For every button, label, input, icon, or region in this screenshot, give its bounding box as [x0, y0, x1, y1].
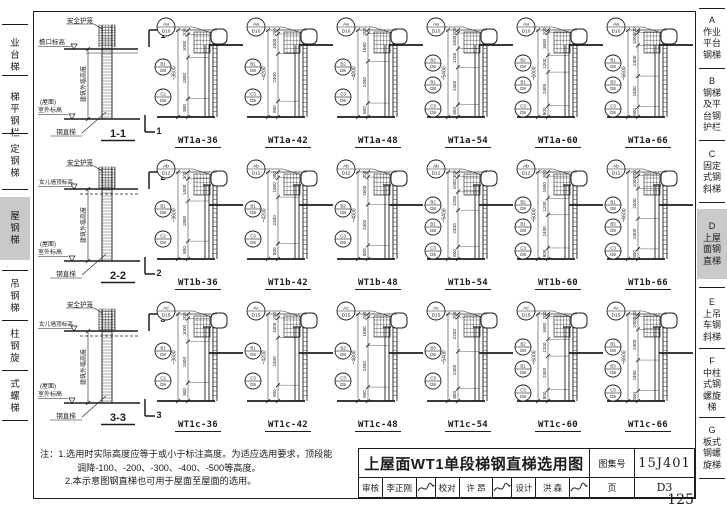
- svg-text:B1: B1: [520, 222, 526, 227]
- svg-text:1600: 1600: [362, 185, 367, 196]
- sign-name: 许 昂: [459, 478, 493, 497]
- tab-label-line: 作业: [703, 27, 721, 39]
- tab-separator: [699, 68, 725, 69]
- callout-bubble: AcD15: [247, 302, 265, 320]
- svg-text:D9: D9: [610, 110, 616, 115]
- tab-key: D: [709, 221, 716, 233]
- svg-text:D12: D12: [432, 171, 441, 177]
- side-tab-G: G板式钢螺旋梯: [697, 423, 727, 473]
- svg-text:1200: 1200: [452, 52, 457, 63]
- callout-bubble: AaD10: [337, 18, 355, 36]
- sign-label: 审核: [359, 478, 382, 497]
- callout-bubble: AcD15: [607, 302, 625, 320]
- tab-label-line: 板式: [703, 437, 721, 449]
- ladder-diagram: ~360020010001800800AcD15B1D8C2D9: [153, 301, 243, 419]
- tab-separator: [2, 370, 28, 371]
- svg-text:D10: D10: [612, 29, 621, 35]
- svg-text:200: 200: [452, 27, 457, 35]
- tab-key: B: [709, 76, 715, 88]
- tab-label-line: 式钢: [703, 379, 721, 391]
- svg-text:B1: B1: [520, 80, 526, 85]
- callout-bubble: C3D9: [335, 89, 351, 105]
- svg-text:B1: B1: [160, 204, 166, 209]
- svg-text:1000: 1000: [182, 184, 187, 195]
- svg-text:~4800: ~4800: [352, 350, 358, 364]
- svg-text:~5400: ~5400: [442, 350, 448, 364]
- callout-bubble: B3D8: [425, 343, 441, 359]
- callout-bubble: B3D8: [605, 77, 621, 93]
- svg-text:室外标高: 室外标高: [38, 390, 62, 398]
- callout-bubble: B1D8: [515, 77, 531, 93]
- svg-text:D8: D8: [610, 206, 616, 211]
- svg-text:D8: D8: [520, 64, 526, 69]
- diagram-cells: ~360020010001800800AaD10B1D8C2D9WT1a-36~…: [153, 17, 693, 148]
- svg-text:2400: 2400: [272, 72, 277, 83]
- ladder-diagram-cell: ~6600200100024002400800AcD15B1D8B3D8C3D9…: [603, 301, 693, 432]
- diagram-label: WT1a-66: [625, 136, 671, 148]
- svg-text:D15: D15: [522, 313, 531, 319]
- ladder-diagram-cell: ~6600300100024002400800AbD12B1D8B3D8C3D9…: [603, 159, 693, 290]
- ladder-diagram-cell: ~6000300160012002400800AbD12B2D8B1D8C3D9…: [513, 159, 603, 290]
- ladder-diagram: ~6600200100024002400800AaD10B1D8B3D8C3D9: [603, 17, 693, 135]
- callout-bubble: C3D9: [515, 101, 531, 117]
- tab-key: G: [708, 425, 715, 437]
- svg-text:B1: B1: [250, 346, 256, 351]
- svg-text:(屋面): (屋面): [40, 383, 56, 390]
- svg-text:D9: D9: [340, 382, 346, 387]
- svg-text:~6600: ~6600: [622, 66, 628, 80]
- tab-separator: [2, 24, 28, 25]
- side-tab-吊钢梯: 吊钢梯: [0, 275, 30, 319]
- svg-text:D8: D8: [610, 370, 616, 375]
- svg-text:800: 800: [632, 392, 637, 400]
- note-line: 2.本示意图钢直梯也可用于屋面至屋面的选用。: [40, 475, 356, 489]
- side-tab-业台梯: 业台梯: [0, 32, 30, 80]
- svg-text:D8: D8: [430, 352, 436, 357]
- callout-bubble: C3D9: [245, 373, 261, 389]
- svg-text:B2: B2: [340, 204, 346, 209]
- tab-label-line: 面钢: [703, 244, 721, 256]
- svg-text:D8: D8: [610, 64, 616, 69]
- svg-text:建筑外墙高度: 建筑外墙高度: [80, 66, 88, 102]
- svg-text:300: 300: [542, 170, 547, 178]
- callout-bubble: AaD10: [517, 18, 535, 36]
- side-tab-柱钢旋: 柱钢旋: [0, 325, 30, 369]
- tab-label-line: 斜梯: [703, 332, 721, 344]
- diagram-label: WT1c-60: [535, 420, 581, 432]
- svg-text:C3: C3: [250, 234, 256, 239]
- ladder-diagram-cell: ~480020016002400800AaD10B2D8C3D9WT1a-48: [333, 17, 423, 148]
- svg-text:200: 200: [272, 312, 277, 320]
- svg-text:B2: B2: [340, 346, 346, 351]
- svg-text:D10: D10: [342, 29, 351, 35]
- tab-label-line: 车钢: [703, 320, 721, 332]
- svg-text:2400: 2400: [362, 77, 367, 88]
- svg-text:1600: 1600: [542, 38, 547, 49]
- svg-text:D12: D12: [162, 171, 171, 177]
- svg-text:800: 800: [542, 249, 547, 257]
- tab-separator: [699, 348, 725, 349]
- svg-text:D8: D8: [160, 210, 166, 215]
- tab-separator: [699, 417, 725, 418]
- svg-text:B1: B1: [160, 62, 166, 67]
- svg-text:D15: D15: [612, 313, 621, 319]
- svg-text:Ab: Ab: [613, 164, 619, 170]
- tab-label-line: 钢螺: [703, 448, 721, 460]
- side-tab-B: B钢梯及平台钢护栏: [697, 76, 727, 134]
- svg-text:200: 200: [452, 311, 457, 319]
- svg-text:D9: D9: [610, 394, 616, 399]
- svg-text:Ac: Ac: [613, 306, 619, 312]
- callout-bubble: C2D9: [155, 373, 171, 389]
- svg-text:D9: D9: [610, 252, 616, 257]
- side-tab-定钢梯: 定钢梯: [0, 140, 30, 184]
- sign-name: 洪 森: [535, 478, 569, 497]
- svg-text:B2: B2: [340, 62, 346, 67]
- callout-bubble: B1D8: [245, 59, 261, 75]
- ladder-diagram: ~6000300160012002400800AbD12B2D8B1D8C3D9: [513, 159, 603, 277]
- svg-text:~3600: ~3600: [172, 208, 178, 222]
- svg-text:D15: D15: [432, 313, 441, 319]
- callout-bubble: C3D9: [515, 385, 531, 401]
- tab-separator: [699, 478, 725, 479]
- callout-bubble: B2D8: [335, 59, 351, 75]
- signature-icon: [569, 478, 589, 497]
- svg-text:B3: B3: [610, 364, 616, 369]
- svg-text:200: 200: [182, 312, 187, 320]
- svg-text:D9: D9: [430, 382, 436, 387]
- ladder-diagram-cell: ~5400200100012002400800AaD10B2D8B1D8C3D9…: [423, 17, 513, 148]
- signature-icon: [492, 478, 511, 497]
- svg-text:C3: C3: [520, 246, 526, 251]
- tab-label-line: 钢梯: [703, 88, 721, 100]
- diagram-label: WT1c-36: [175, 420, 221, 432]
- svg-text:D10: D10: [522, 29, 531, 35]
- svg-text:800: 800: [362, 106, 367, 114]
- svg-text:2400: 2400: [452, 223, 457, 234]
- svg-text:B3: B3: [430, 346, 436, 351]
- drawing-frame: 檐口标高安全护笼建筑外墙高度(屋面)室外标高钢直梯1-111~360020010…: [33, 11, 696, 499]
- svg-text:D9: D9: [250, 382, 256, 387]
- svg-text:D15: D15: [252, 313, 261, 319]
- callout-bubble: B1D8: [425, 77, 441, 93]
- callout-bubble: C3D9: [515, 243, 531, 259]
- svg-text:C3: C3: [430, 104, 436, 109]
- ladder-diagram: ~5400200100012002400800AaD10B2D8B1D8C3D9: [423, 17, 513, 135]
- svg-text:D10: D10: [252, 29, 261, 35]
- svg-text:D9: D9: [520, 394, 526, 399]
- svg-text:1200: 1200: [542, 58, 547, 69]
- svg-text:(屋面): (屋面): [40, 99, 56, 106]
- svg-text:200: 200: [182, 28, 187, 36]
- diagram-row-3-3: 女儿墙顶标高安全护笼建筑外墙高度(屋面)室外标高钢直梯3-333~3600200…: [34, 299, 693, 439]
- diagram-label: WT1a-42: [265, 136, 311, 148]
- callout-bubble: AbD12: [157, 160, 175, 178]
- tab-label-line: 护栏: [703, 122, 721, 134]
- svg-text:B1: B1: [160, 346, 166, 351]
- diagram-label: WT1b-66: [625, 278, 671, 290]
- svg-text:300: 300: [362, 170, 367, 178]
- svg-text:D9: D9: [250, 98, 256, 103]
- svg-text:~5400: ~5400: [442, 208, 448, 222]
- tab-label-line: 上屋: [703, 233, 721, 245]
- svg-text:1000: 1000: [452, 35, 457, 46]
- svg-text:C3: C3: [340, 376, 346, 381]
- tab-label-line: 钢梯: [703, 50, 721, 62]
- svg-text:~4800: ~4800: [352, 208, 358, 222]
- ladder-diagram: ~420030010002400800AbD12B1D8C3D9: [243, 159, 333, 277]
- svg-text:1000: 1000: [632, 317, 637, 328]
- ladder-diagram: ~6600200100024002400800AcD15B1D8B3D8C3D9: [603, 301, 693, 419]
- svg-text:D8: D8: [340, 68, 346, 73]
- signature-icon: [416, 478, 435, 497]
- tab-label-line: 斜梯: [703, 184, 721, 196]
- callout-bubble: C3D9: [335, 373, 351, 389]
- ladder-diagram-cell: ~6600200100024002400800AaD10B1D8B3D8C3D9…: [603, 17, 693, 148]
- tab-label-line: 旋梯: [703, 460, 721, 472]
- svg-text:1800: 1800: [182, 216, 187, 227]
- diagram-cells: ~360020010001800800AcD15B1D8C2D9WT1c-36~…: [153, 301, 693, 432]
- callout-bubble: C3D9: [335, 231, 351, 247]
- ladder-diagram-cell: ~360020010001800800AaD10B1D8C2D9WT1a-36: [153, 17, 243, 148]
- side-tab-A: A作业平台钢梯: [697, 14, 727, 62]
- callout-bubble: AbD12: [607, 160, 625, 178]
- callout-bubble: C2D9: [155, 89, 171, 105]
- tab-separator: [2, 270, 28, 271]
- svg-text:2400: 2400: [632, 370, 637, 381]
- svg-text:D8: D8: [520, 86, 526, 91]
- svg-text:檐口标高: 檐口标高: [39, 37, 66, 46]
- svg-text:1000: 1000: [272, 38, 277, 49]
- svg-text:Ac: Ac: [343, 306, 349, 312]
- svg-text:D9: D9: [250, 240, 256, 245]
- svg-text:1800: 1800: [182, 357, 187, 368]
- callout-bubble: AcD15: [427, 302, 445, 320]
- svg-text:800: 800: [182, 104, 187, 112]
- svg-text:1200: 1200: [542, 201, 547, 212]
- callout-bubble: AbD12: [247, 160, 265, 178]
- tab-separator: [699, 202, 725, 203]
- svg-text:室外标高: 室外标高: [38, 248, 62, 256]
- svg-text:D8: D8: [610, 228, 616, 233]
- svg-text:B1: B1: [430, 80, 436, 85]
- side-tab-C: C固定式钢斜梯: [697, 148, 727, 196]
- tab-label-line: 固定: [703, 161, 721, 173]
- callout-bubble: AbD12: [517, 160, 535, 178]
- svg-text:D12: D12: [252, 171, 261, 177]
- svg-text:D9: D9: [520, 252, 526, 257]
- svg-text:1000: 1000: [182, 324, 187, 335]
- svg-text:钢直梯: 钢直梯: [56, 411, 76, 420]
- tab-key: F: [709, 356, 715, 368]
- tab-label-line: 上吊: [703, 309, 721, 321]
- callout-bubble: B3D8: [605, 219, 621, 235]
- diagram-label: WT1a-48: [355, 136, 401, 148]
- diagram-label: WT1b-42: [265, 278, 311, 290]
- ladder-diagram: ~6000200160012002400800AaD10B2D8B1D8C3D9: [513, 17, 603, 135]
- atlas-number-label: 图集号: [589, 449, 634, 477]
- svg-text:2400: 2400: [272, 356, 277, 367]
- svg-text:D8: D8: [340, 352, 346, 357]
- svg-text:~6600: ~6600: [622, 208, 628, 222]
- callout-bubble: AaD10: [427, 18, 445, 36]
- callout-bubble: B1D8: [245, 343, 261, 359]
- svg-text:Ab: Ab: [343, 164, 349, 170]
- callout-bubble: AbD12: [427, 160, 445, 178]
- sheet-title: 上屋面WT1单段梯钢直梯选用图: [359, 449, 589, 477]
- svg-text:D10: D10: [432, 29, 441, 35]
- side-tab-D: D上屋面钢直梯: [697, 209, 727, 279]
- callout-bubble: B1D8: [155, 343, 171, 359]
- tab-separator: [2, 75, 28, 76]
- svg-text:2400: 2400: [632, 198, 637, 209]
- tab-label-line: 螺旋: [703, 391, 721, 403]
- svg-text:C3: C3: [610, 104, 616, 109]
- svg-text:Ac: Ac: [253, 306, 259, 312]
- svg-text:C3: C3: [250, 376, 256, 381]
- svg-text:C3: C3: [520, 388, 526, 393]
- svg-text:1600: 1600: [362, 326, 367, 337]
- ladder-diagram: ~5400300100012002400800AbD12B2D8B1D8C3D9: [423, 159, 513, 277]
- svg-text:1-1: 1-1: [110, 128, 126, 140]
- side-tab-屋钢梯: 屋钢梯: [0, 197, 30, 260]
- svg-text:800: 800: [272, 247, 277, 255]
- svg-text:D10: D10: [162, 29, 171, 35]
- svg-text:D8: D8: [250, 210, 256, 215]
- svg-text:800: 800: [632, 250, 637, 258]
- tab-separator: [2, 320, 28, 321]
- ladder-diagram: ~420020010002400800AcD15B1D8C3D9: [243, 301, 333, 419]
- svg-text:2400: 2400: [542, 226, 547, 237]
- tab-key: C: [709, 149, 716, 161]
- svg-text:D8: D8: [250, 352, 256, 357]
- svg-text:C3: C3: [520, 104, 526, 109]
- svg-text:D12: D12: [342, 171, 351, 177]
- tab-label-line: 及平: [703, 99, 721, 111]
- svg-text:B3: B3: [610, 222, 616, 227]
- svg-text:~6000: ~6000: [532, 350, 538, 364]
- callout-bubble: B2D8: [425, 55, 441, 71]
- svg-text:Ac: Ac: [523, 306, 529, 312]
- svg-text:Ab: Ab: [253, 164, 259, 170]
- tab-separator: [2, 189, 28, 190]
- ladder-diagram-cell: ~360030010001800800AbD12B1D8C2D9WT1b-36: [153, 159, 243, 290]
- svg-text:女儿墙顶标高: 女儿墙顶标高: [39, 178, 73, 186]
- svg-text:1000: 1000: [452, 179, 457, 190]
- callout-bubble: C3D9: [245, 231, 261, 247]
- tab-key: E: [709, 297, 715, 309]
- svg-text:800: 800: [542, 107, 547, 115]
- callout-bubble: B2D8: [425, 197, 441, 213]
- ladder-diagram: ~540020022002400800AcD15B3D8C3D9: [423, 301, 513, 419]
- svg-text:C2: C2: [160, 92, 166, 97]
- side-tab-梯平钢栏: 梯平钢栏: [0, 86, 30, 146]
- svg-text:300: 300: [272, 171, 277, 179]
- svg-text:Aa: Aa: [343, 22, 349, 28]
- diagram-row-1-1: 檐口标高安全护笼建筑外墙高度(屋面)室外标高钢直梯1-111~360020010…: [34, 15, 693, 155]
- ladder-diagram: ~360030010001800800AbD12B1D8C2D9: [153, 159, 243, 277]
- left-tab-strip: 业台梯梯平钢栏定钢梯屋钢梯吊钢梯柱钢旋式螺梯: [0, 0, 30, 515]
- svg-text:2400: 2400: [542, 83, 547, 94]
- svg-text:1000: 1000: [272, 322, 277, 333]
- svg-text:~6000: ~6000: [532, 208, 538, 222]
- svg-text:B1: B1: [430, 222, 436, 227]
- svg-text:800: 800: [362, 390, 367, 398]
- ladder-diagram-cell: ~480030016002400800AbD12B2D8C3D9WT1b-48: [333, 159, 423, 290]
- svg-text:D15: D15: [342, 313, 351, 319]
- svg-text:2400: 2400: [452, 80, 457, 91]
- section-detail-drawing: 檐口标高安全护笼建筑外墙高度(屋面)室外标高钢直梯1-1: [38, 15, 150, 143]
- atlas-number-value: 15J401: [634, 449, 694, 477]
- svg-text:Aa: Aa: [523, 22, 529, 28]
- svg-text:~4800: ~4800: [352, 66, 358, 80]
- callout-bubble: B2D8: [515, 197, 531, 213]
- ladder-diagram-cell: ~420020010002400800AcD15B1D8C3D9WT1c-42: [243, 301, 333, 432]
- svg-text:Aa: Aa: [163, 22, 169, 28]
- note-line: 注：1.选用时实际高度应等于或小于标注高度。为适应选用要求，顶段能: [40, 448, 356, 462]
- side-tab-E: E上吊车钢斜梯: [697, 295, 727, 345]
- callout-bubble: AaD10: [157, 18, 175, 36]
- svg-text:2400: 2400: [632, 228, 637, 239]
- diagram-label: WT1b-36: [175, 278, 221, 290]
- ladder-diagram: ~360020010001800800AaD10B1D8C2D9: [153, 17, 243, 135]
- svg-text:300: 300: [632, 170, 637, 178]
- title-block: 上屋面WT1单段梯钢直梯选用图 图集号 15J401 审核李正刚校对许 昂设计洪…: [358, 448, 695, 498]
- svg-text:D9: D9: [340, 240, 346, 245]
- tab-separator: [699, 287, 725, 288]
- ladder-diagram: ~420020010002400800AaD10B1D8C3D9: [243, 17, 333, 135]
- svg-text:800: 800: [542, 391, 547, 399]
- svg-text:D8: D8: [250, 68, 256, 73]
- svg-text:800: 800: [272, 389, 277, 397]
- svg-text:B2: B2: [520, 200, 526, 205]
- svg-text:C3: C3: [340, 234, 346, 239]
- svg-text:200: 200: [362, 27, 367, 35]
- svg-text:2200: 2200: [452, 329, 457, 340]
- svg-text:800: 800: [452, 249, 457, 257]
- ladder-diagram-cell: ~480020016002400800AcD15B2D8C3D9WT1c-48: [333, 301, 423, 432]
- callout-bubble: AcD15: [337, 302, 355, 320]
- callout-bubble: C3D9: [425, 243, 441, 259]
- diagram-label: WT1a-54: [445, 136, 491, 148]
- svg-text:1000: 1000: [182, 40, 187, 51]
- diagram-label: WT1a-60: [535, 136, 581, 148]
- callout-bubble: B2D8: [335, 201, 351, 217]
- svg-text:B1: B1: [520, 364, 526, 369]
- ladder-diagram-cell: ~420020010002400800AaD10B1D8C3D9WT1a-42: [243, 17, 333, 148]
- diagram-label: WT1b-48: [355, 278, 401, 290]
- svg-text:800: 800: [632, 108, 637, 116]
- callout-bubble: B2D8: [335, 343, 351, 359]
- svg-text:D8: D8: [610, 348, 616, 353]
- svg-text:建筑外墙高度: 建筑外墙高度: [80, 349, 88, 385]
- svg-text:Aa: Aa: [613, 22, 619, 28]
- svg-text:1200: 1200: [452, 195, 457, 206]
- tab-label-line: 平台: [703, 38, 721, 50]
- ladder-diagram-cell: ~420030010002400800AbD12B1D8C3D9WT1b-42: [243, 159, 333, 290]
- svg-text:2400: 2400: [632, 86, 637, 97]
- svg-text:Aa: Aa: [253, 22, 259, 28]
- svg-text:~3600: ~3600: [172, 66, 178, 80]
- callout-bubble: C3D9: [425, 373, 441, 389]
- sign-label: 校对: [435, 478, 459, 497]
- svg-text:B2: B2: [520, 342, 526, 347]
- svg-text:800: 800: [182, 388, 187, 396]
- svg-text:建筑外墙高度: 建筑外墙高度: [80, 207, 88, 243]
- callout-bubble: AcD15: [517, 302, 535, 320]
- callout-bubble: B1D8: [425, 219, 441, 235]
- tab-separator: [2, 420, 28, 421]
